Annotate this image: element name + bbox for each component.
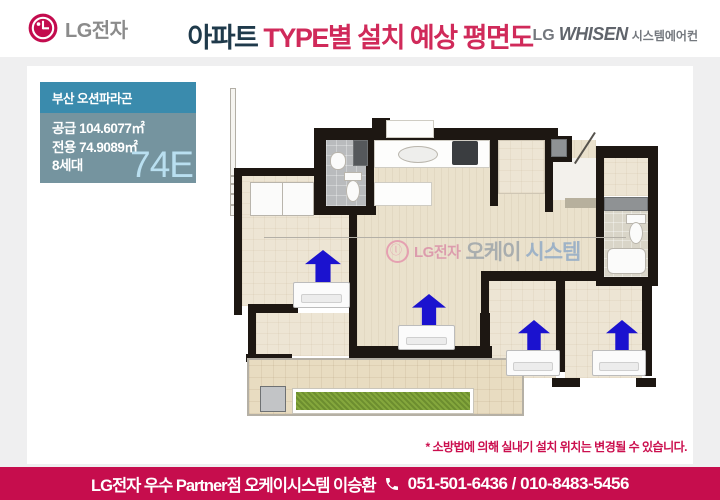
wall <box>596 158 604 212</box>
whisen-lg-text: LG <box>533 27 555 45</box>
watermark-lg-text: LG전자 <box>414 241 460 262</box>
wall <box>596 146 658 158</box>
toilet-icon <box>346 180 360 202</box>
shoe-closet <box>551 139 567 157</box>
header-bar: LG전자 아파트 TYPE별 설치 예상 평면도 LG WHISEN 시스템에어… <box>0 0 720 57</box>
whisen-wordmark: WHISEN <box>559 24 628 45</box>
ac-indoor-unit <box>293 282 350 308</box>
lg-watermark-icon <box>386 240 409 263</box>
complex-name: 부산 오션파라곤 <box>40 82 196 113</box>
entry-floor <box>553 158 596 200</box>
dressroom-floor <box>604 158 648 196</box>
wall <box>234 168 242 315</box>
unit-info-box: 부산 오션파라곤 공급 104.6077㎡ 전용 74.9089㎡ 8세대 74… <box>40 82 196 183</box>
wall <box>314 206 376 215</box>
ac-indoor-unit <box>592 350 646 376</box>
watermark: LG전자 오케이 시스템 <box>386 236 580 266</box>
outdoor-unit <box>260 386 286 412</box>
kitchen-island <box>374 182 432 206</box>
toilet-icon <box>629 222 643 244</box>
wall <box>481 271 604 281</box>
floor-plan: LG전자 오케이 시스템 <box>230 88 660 418</box>
phone-icon <box>384 476 400 492</box>
content-card: 부산 오션파라곤 공급 104.6077㎡ 전용 74.9089㎡ 8세대 74… <box>27 66 693 464</box>
planter-grass <box>296 392 470 410</box>
wall <box>490 132 498 206</box>
wall <box>248 304 298 313</box>
page: { "header": { "logo_text": "LG전자", "titl… <box>0 0 720 500</box>
page-title-part1: 아파트 <box>187 23 257 53</box>
wall <box>314 128 326 212</box>
wall <box>596 277 658 286</box>
sink-icon <box>330 152 346 170</box>
wall <box>552 378 580 387</box>
wall <box>314 128 558 140</box>
watermark-word2: 시스템 <box>525 236 580 266</box>
footer-bar: LG전자 우수 Partner점 오케이시스템 이승환 051-501-6436… <box>0 467 720 500</box>
washer-unit <box>353 140 368 166</box>
alcove-floor <box>256 313 349 356</box>
entry-step <box>565 198 598 208</box>
wall <box>648 158 658 286</box>
wall <box>636 378 656 387</box>
wall <box>596 211 604 286</box>
phone-number: 051-501-6436 / 010-8483-5456 <box>408 474 629 494</box>
bathtub-icon <box>607 248 646 274</box>
ac-indoor-unit <box>398 325 455 350</box>
wall <box>234 168 324 176</box>
ac-indoor-unit <box>506 350 560 376</box>
whisen-suffix: 시스템에어컨 <box>632 27 698 44</box>
dealer-text: LG전자 우수 Partner점 오케이시스템 이승환 <box>91 472 376 496</box>
wardrobe-divider <box>282 182 283 216</box>
stove-icon <box>452 141 478 165</box>
disclaimer-text: * 소방법에 의해 실내기 설치 위치는 변경될 수 있습니다. <box>425 438 687 455</box>
utility-mat <box>604 197 648 211</box>
unit-info-body: 공급 104.6077㎡ 전용 74.9089㎡ 8세대 74E <box>40 113 196 183</box>
pantry-floor <box>498 140 545 194</box>
watermark-word1: 오케이 <box>465 236 520 266</box>
wall <box>248 313 256 360</box>
supply-area: 공급 104.6077㎡ <box>52 120 188 139</box>
window <box>230 88 236 176</box>
type-label: 74E <box>130 146 193 183</box>
page-title-part2: TYPE별 설치 예상 평면도 <box>257 23 532 53</box>
kitchen-sink-icon <box>398 146 438 163</box>
whisen-logo: LG WHISEN 시스템에어컨 <box>533 24 698 45</box>
upper-cabinet <box>386 120 434 138</box>
